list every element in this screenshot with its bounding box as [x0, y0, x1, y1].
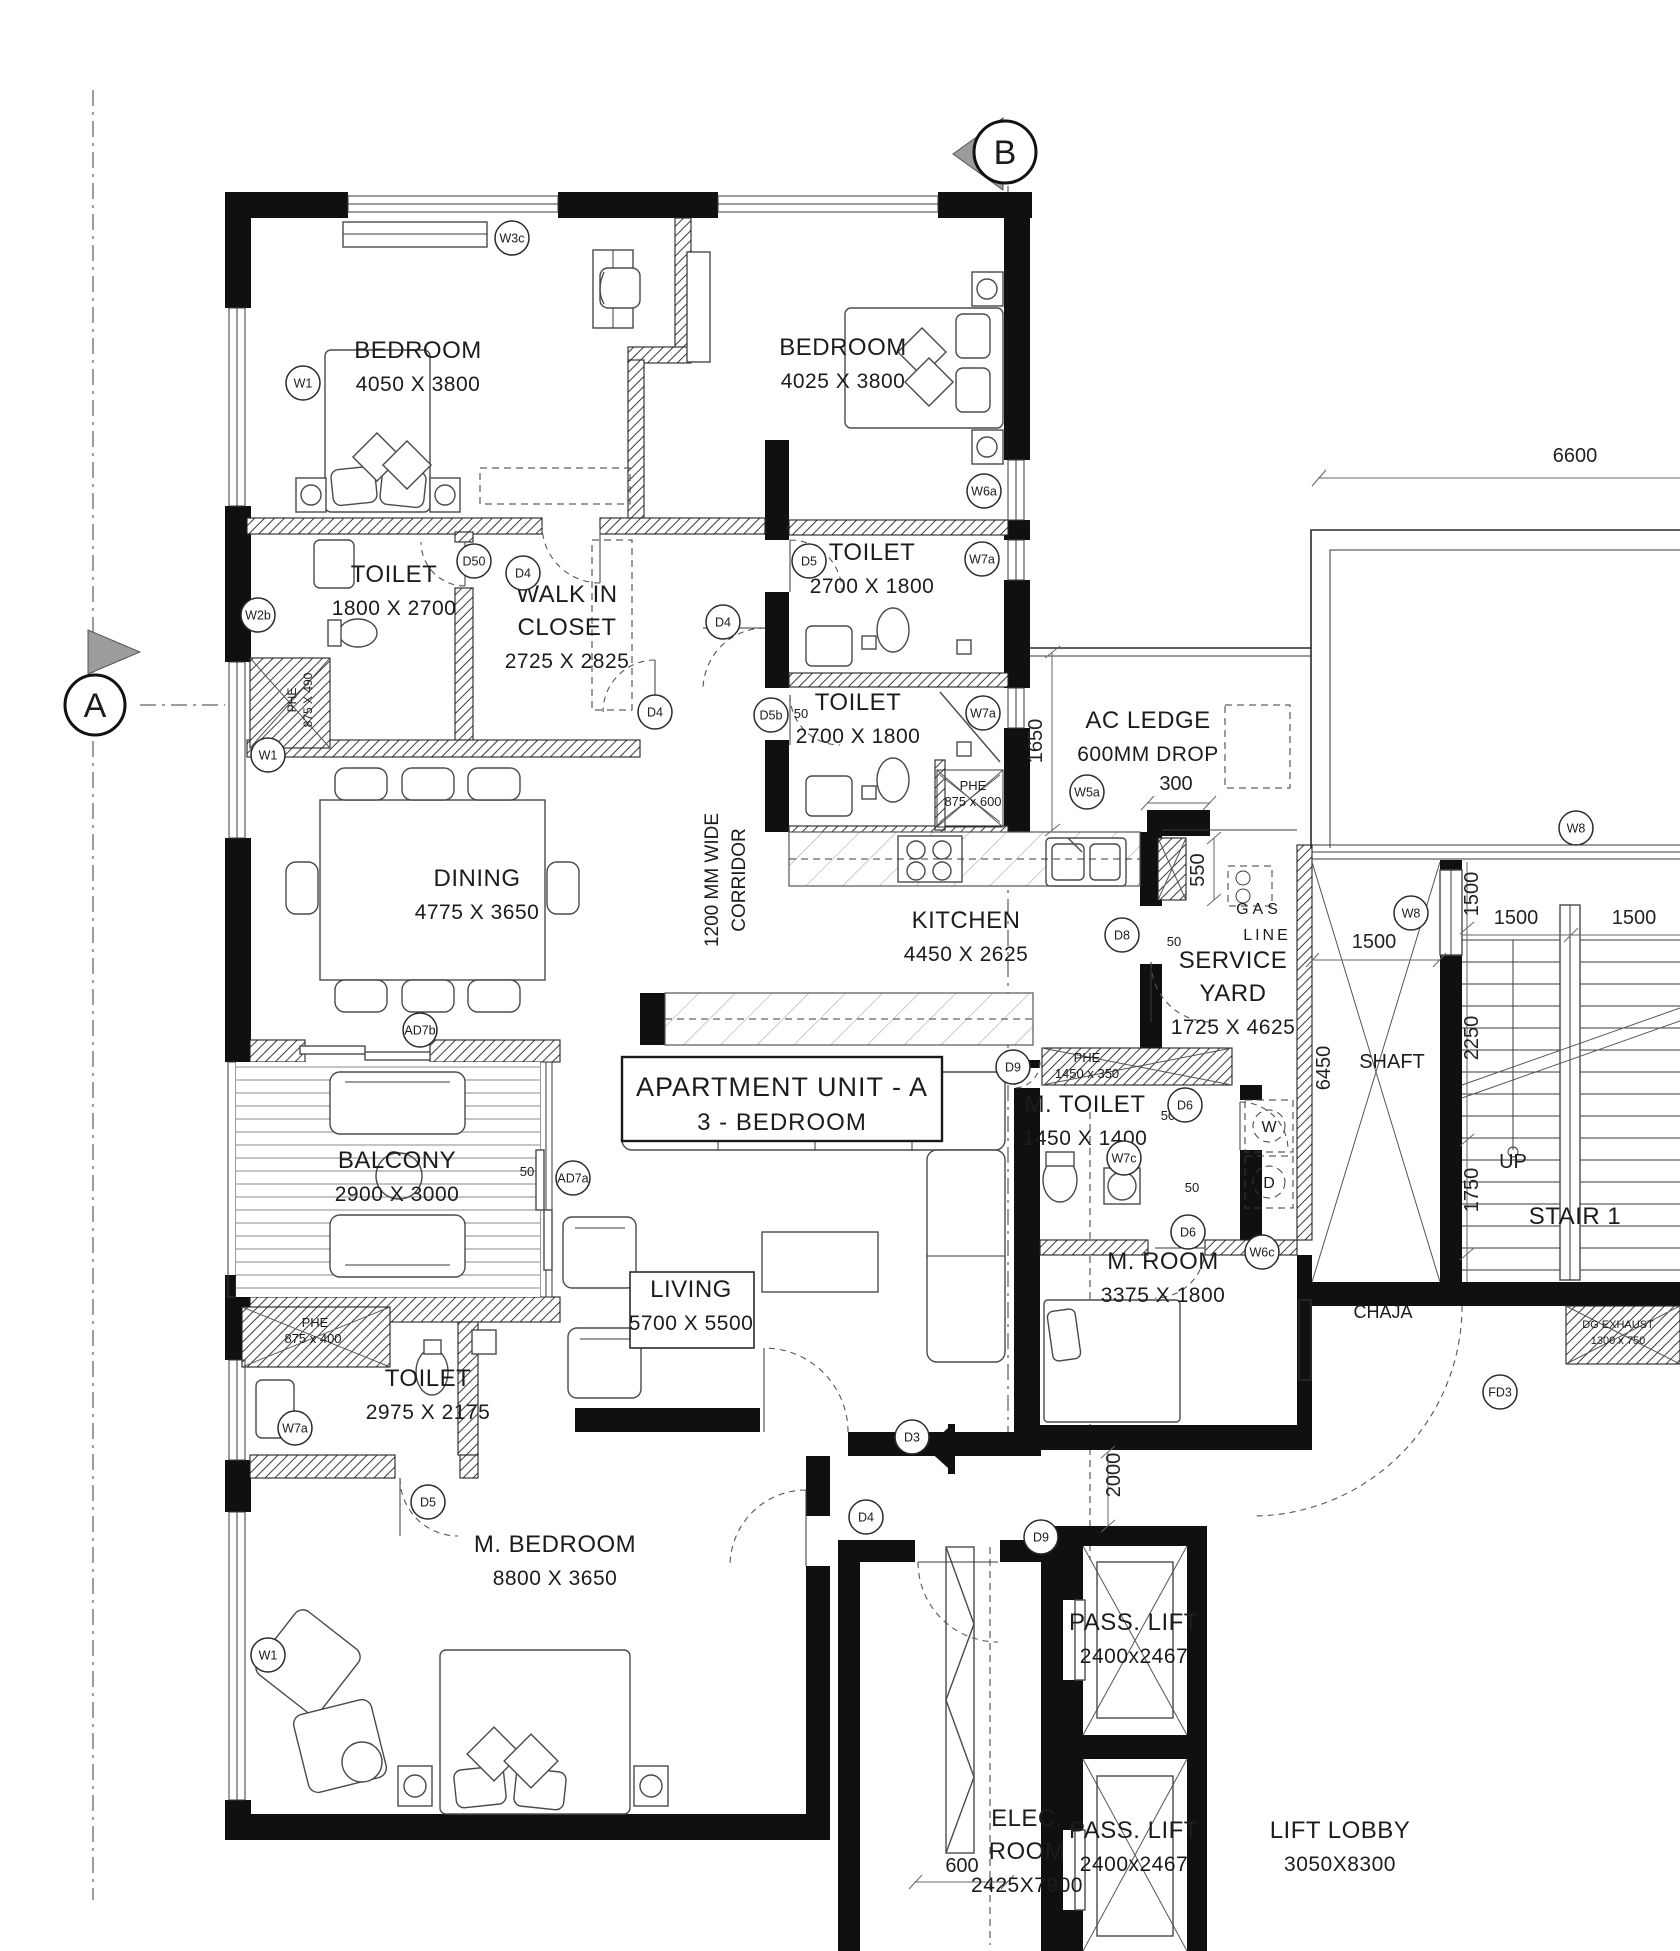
- tag-w7c: W7c: [1107, 1141, 1141, 1175]
- svg-text:2400x2467: 2400x2467: [1080, 1645, 1188, 1668]
- section-marker-b: B: [953, 118, 1036, 190]
- tag-w6a: W6a: [967, 474, 1001, 508]
- svg-text:PASS. LIFT: PASS. LIFT: [1069, 1609, 1199, 1636]
- svg-text:YARD: YARD: [1200, 980, 1267, 1007]
- svg-text:2700 X 1800: 2700 X 1800: [810, 575, 935, 598]
- svg-text:BEDROOM: BEDROOM: [354, 337, 482, 364]
- tag-d9: D9: [996, 1050, 1030, 1084]
- room-label: SERVICEYARD1725 X 4625: [1171, 947, 1296, 1039]
- svg-text:W8: W8: [1402, 907, 1421, 921]
- dimension-text: 1650: [1025, 719, 1047, 764]
- tag-w1: W1: [286, 366, 320, 400]
- dimension-text: 1500: [1612, 907, 1657, 929]
- tag-w7a: W7a: [966, 696, 1000, 730]
- unit-title-box: APARTMENT UNIT - A 3 - BEDROOM: [622, 1057, 942, 1141]
- svg-text:STAIR 1: STAIR 1: [1529, 1203, 1621, 1230]
- window-shaft-w8: [1440, 870, 1462, 955]
- svg-text:D4: D4: [515, 567, 531, 581]
- tag-w1: W1: [251, 738, 285, 772]
- plan-label: GAS: [1236, 901, 1282, 918]
- mbedroom-furniture: [252, 1606, 668, 1814]
- tag-d4: D4: [706, 605, 740, 639]
- plan-label: SHAFT: [1359, 1051, 1425, 1073]
- svg-text:M. ROOM: M. ROOM: [1107, 1248, 1219, 1275]
- svg-text:D6: D6: [1180, 1226, 1196, 1240]
- svg-text:2975 X 2175: 2975 X 2175: [366, 1401, 491, 1424]
- tag-w1: W1: [251, 1638, 285, 1672]
- window-stair-top: [1312, 845, 1680, 859]
- window-w7a-1: [1008, 540, 1024, 580]
- svg-text:CLOSET: CLOSET: [517, 614, 616, 641]
- tag-d4: D4: [849, 1500, 883, 1534]
- svg-text:D5: D5: [420, 1496, 436, 1510]
- room-label: TOILET1800 X 2700: [332, 561, 457, 620]
- window-balcony-edge: [228, 1062, 236, 1297]
- room-label: LIFT LOBBY3050X8300: [1270, 1817, 1411, 1876]
- svg-text:LIVING: LIVING: [650, 1276, 732, 1303]
- tag-d4: D4: [506, 556, 540, 590]
- dining-set: [286, 768, 579, 1012]
- tag-d9: D9: [1024, 1520, 1058, 1554]
- tag-w5a: W5a: [1070, 775, 1104, 809]
- tag-d8: D8: [1105, 918, 1139, 952]
- svg-text:D4: D4: [715, 616, 731, 630]
- svg-text:2400x2467: 2400x2467: [1080, 1853, 1188, 1876]
- svg-text:W6c: W6c: [1250, 1246, 1275, 1260]
- svg-text:KITCHEN: KITCHEN: [912, 907, 1021, 934]
- svg-text:PASS. LIFT: PASS. LIFT: [1069, 1817, 1199, 1844]
- window-left-toilet: [229, 1360, 245, 1460]
- dimension-text: 6600: [1553, 445, 1598, 467]
- dimension-text: 1750: [1461, 1168, 1483, 1213]
- plan-label: LINE: [1243, 927, 1291, 944]
- floor-plan-sheet: APARTMENT UNIT - A 3 - BEDROOM BEDROOM40…: [0, 0, 1680, 1951]
- window-top-2: [718, 196, 938, 212]
- svg-text:W7a: W7a: [282, 1422, 308, 1436]
- room-label: M. BEDROOM8800 X 3650: [474, 1531, 636, 1590]
- dimension-text: 1500: [1494, 907, 1539, 929]
- svg-text:AD7a: AD7a: [557, 1172, 588, 1186]
- svg-text:W7a: W7a: [969, 553, 995, 567]
- svg-text:A: A: [84, 687, 107, 725]
- window-left-bedroom1: [229, 308, 245, 506]
- unit-subtitle: 3 - BEDROOM: [697, 1109, 867, 1136]
- svg-text:W1: W1: [259, 749, 278, 763]
- tag-ad7a: AD7a: [556, 1161, 590, 1195]
- svg-text:TOILET: TOILET: [351, 561, 438, 588]
- plan-label: 875 x 400: [284, 1331, 341, 1346]
- svg-text:5700 X 5500: 5700 X 5500: [629, 1312, 754, 1335]
- svg-text:4775 X 3650: 4775 X 3650: [415, 901, 540, 924]
- tag-d50: D50: [457, 544, 491, 578]
- window-w7a-2: [1008, 688, 1024, 728]
- tag-d3: D3: [895, 1420, 929, 1454]
- tag-d5b: D5b: [754, 698, 788, 732]
- plan-label: 50: [520, 1164, 534, 1179]
- dimension-text: 600: [945, 1855, 978, 1877]
- svg-text:W7c: W7c: [1112, 1152, 1137, 1166]
- dimension-text: 6450: [1313, 1046, 1335, 1091]
- plan-label: D: [1263, 1175, 1275, 1192]
- svg-text:D9: D9: [1005, 1061, 1021, 1075]
- svg-text:AC LEDGE: AC LEDGE: [1085, 707, 1210, 734]
- svg-text:D50: D50: [463, 555, 486, 569]
- svg-text:4050 X 3800: 4050 X 3800: [356, 373, 481, 396]
- svg-text:W2b: W2b: [245, 609, 271, 623]
- plan-label: 1450 x 350: [1055, 1066, 1119, 1081]
- svg-text:B: B: [994, 134, 1017, 172]
- svg-text:BEDROOM: BEDROOM: [779, 334, 907, 361]
- svg-text:4450 X 2625: 4450 X 2625: [904, 943, 1029, 966]
- svg-text:3375 X 1800: 3375 X 1800: [1101, 1284, 1226, 1307]
- tag-w2b: W2b: [241, 598, 275, 632]
- tag-d6: D6: [1168, 1088, 1202, 1122]
- tag-fd3: FD3: [1483, 1375, 1517, 1409]
- svg-text:W7a: W7a: [970, 707, 996, 721]
- svg-text:2700 X 1800: 2700 X 1800: [796, 725, 921, 748]
- svg-text:D4: D4: [647, 706, 663, 720]
- svg-text:W6a: W6a: [971, 485, 997, 499]
- svg-text:TOILET: TOILET: [385, 1365, 472, 1392]
- closet-shelf: [480, 468, 630, 504]
- svg-text:W1: W1: [259, 1649, 278, 1663]
- tag-d5: D5: [792, 544, 826, 578]
- plan-label: 875 X 490: [301, 672, 315, 727]
- plan-label: CORRIDOR: [729, 828, 750, 931]
- dimension-text: 1500: [1352, 931, 1397, 953]
- svg-text:D3: D3: [904, 1431, 920, 1445]
- plan-label: PHE: [1074, 1050, 1101, 1065]
- tag-w7a: W7a: [278, 1411, 312, 1445]
- plan-label: UP: [1499, 1151, 1527, 1173]
- svg-text:D8: D8: [1114, 929, 1130, 943]
- section-marker-a: A: [65, 630, 140, 735]
- plan-label: 1300 x 750: [1591, 1335, 1645, 1347]
- mroom-bed: [1044, 1300, 1180, 1422]
- svg-text:1800 X 2700: 1800 X 2700: [332, 597, 457, 620]
- svg-text:DINING: DINING: [434, 865, 521, 892]
- plan-label: CHAJA: [1353, 1302, 1412, 1322]
- svg-text:1725 X 4625: 1725 X 4625: [1171, 1016, 1296, 1039]
- svg-text:LIFT LOBBY: LIFT LOBBY: [1270, 1817, 1411, 1844]
- svg-text:BALCONY: BALCONY: [338, 1147, 456, 1174]
- svg-text:D9: D9: [1033, 1531, 1049, 1545]
- svg-text:W8: W8: [1567, 822, 1586, 836]
- window-left-mbedroom: [229, 1512, 245, 1800]
- room-label: AC LEDGE600MM DROP: [1077, 707, 1219, 766]
- svg-text:FD3: FD3: [1488, 1386, 1512, 1400]
- tag-d4: D4: [638, 695, 672, 729]
- plan-label: 1200 MM WIDE: [702, 813, 723, 947]
- svg-text:TOILET: TOILET: [815, 689, 902, 716]
- svg-text:2900 X 3000: 2900 X 3000: [335, 1183, 460, 1206]
- floor-plan-drawing: APARTMENT UNIT - A 3 - BEDROOM BEDROOM40…: [0, 0, 1680, 1951]
- svg-text:D5: D5: [801, 555, 817, 569]
- tag-w8: W8: [1559, 811, 1593, 845]
- svg-text:2425X7900: 2425X7900: [971, 1874, 1083, 1897]
- window-top-1: [348, 196, 558, 212]
- furniture: [236, 222, 1680, 1951]
- tag-d5: D5: [411, 1485, 445, 1519]
- window-w6a: [1008, 460, 1024, 520]
- plan-label: PHE: [960, 778, 987, 793]
- plan-label: W: [1261, 1119, 1277, 1136]
- svg-text:M. BEDROOM: M. BEDROOM: [474, 1531, 636, 1558]
- tag-ad7b: AD7b: [403, 1013, 437, 1047]
- room-label: PASS. LIFT2400x2467: [1069, 1817, 1199, 1876]
- plan-label: 875 x 600: [944, 794, 1001, 809]
- svg-text:SERVICE: SERVICE: [1179, 947, 1287, 974]
- room-label: M. ROOM3375 X 1800: [1101, 1248, 1226, 1307]
- svg-text:W5a: W5a: [1074, 786, 1100, 800]
- svg-text:D5b: D5b: [760, 709, 783, 723]
- svg-text:ELEC.: ELEC.: [991, 1805, 1063, 1832]
- svg-text:W3c: W3c: [500, 232, 525, 246]
- svg-text:D4: D4: [858, 1511, 874, 1525]
- room-label: STAIR 1: [1529, 1203, 1621, 1230]
- plan-label: DG EXHAUST: [1582, 1319, 1654, 1331]
- svg-text:8800 X 3650: 8800 X 3650: [493, 1567, 618, 1590]
- tag-w7a: W7a: [965, 542, 999, 576]
- tag-w6c: W6c: [1245, 1235, 1279, 1269]
- dimension-text: 1500: [1461, 872, 1483, 917]
- svg-text:D6: D6: [1177, 1099, 1193, 1113]
- svg-text:3050X8300: 3050X8300: [1284, 1853, 1396, 1876]
- svg-text:W1: W1: [294, 377, 313, 391]
- plan-label: PHE: [285, 688, 299, 713]
- room-label: KITCHEN4450 X 2625: [904, 907, 1029, 966]
- tag-d6: D6: [1171, 1215, 1205, 1249]
- unit-title: APARTMENT UNIT - A: [636, 1072, 928, 1102]
- dimension-text: 300: [1159, 773, 1192, 795]
- svg-text:600MM DROP: 600MM DROP: [1077, 743, 1219, 766]
- room-label: TOILET2700 X 1800: [796, 689, 921, 748]
- window-left-dining: [229, 662, 245, 838]
- plan-label: PHE: [302, 1315, 329, 1330]
- svg-text:TOILET: TOILET: [829, 539, 916, 566]
- svg-text:4025 X 3800: 4025 X 3800: [781, 370, 906, 393]
- plan-label: 50: [794, 706, 808, 721]
- svg-text:ROOM: ROOM: [989, 1838, 1066, 1865]
- plan-label: 50: [1167, 934, 1181, 949]
- entry-arrow: [926, 1424, 955, 1474]
- dimension-text: 550: [1187, 853, 1209, 886]
- svg-text:AD7b: AD7b: [404, 1024, 435, 1038]
- room-label: TOILET2700 X 1800: [810, 539, 935, 598]
- svg-text:M. TOILET: M. TOILET: [1025, 1091, 1146, 1118]
- svg-text:2725 X 2825: 2725 X 2825: [505, 650, 630, 673]
- plan-label: 50: [1185, 1180, 1199, 1195]
- tag-w3c: W3c: [495, 221, 529, 255]
- room-label: WALK INCLOSET2725 X 2825: [505, 581, 630, 673]
- toilet1-fixtures: [314, 540, 377, 647]
- dimension-text: 2000: [1103, 1453, 1125, 1498]
- tag-w8: W8: [1394, 896, 1428, 930]
- dimension-text: 2250: [1461, 1016, 1483, 1061]
